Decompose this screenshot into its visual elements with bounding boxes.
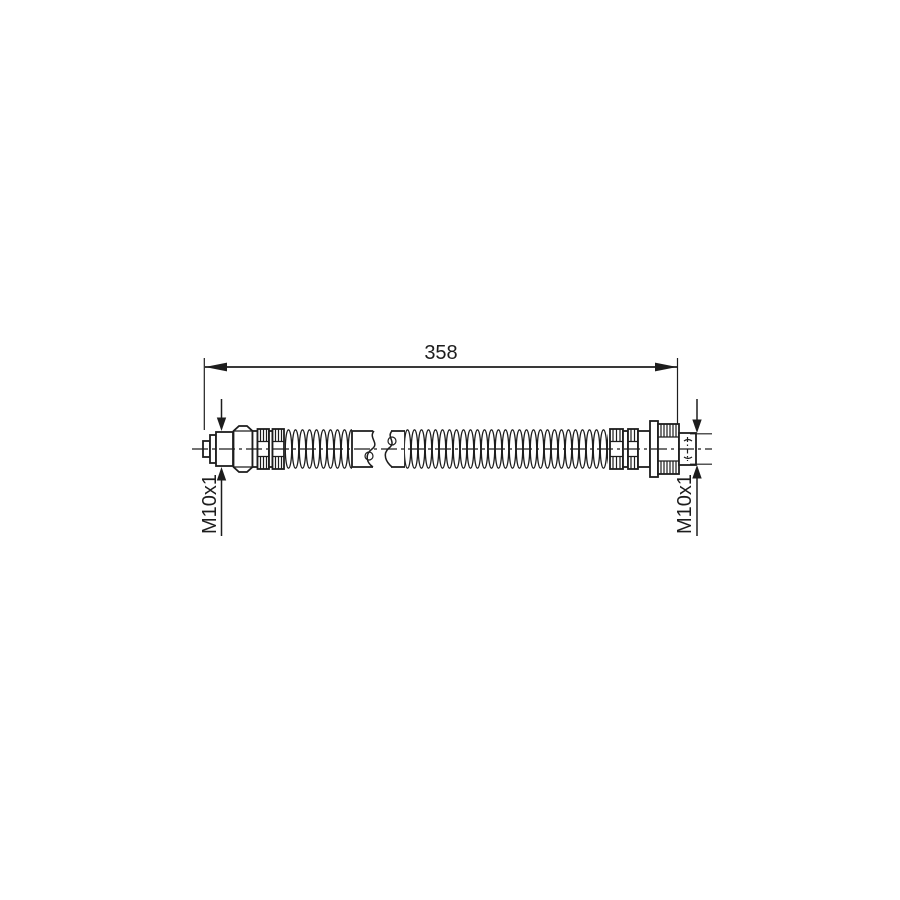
left-thread-label: M10x1 <box>199 474 221 534</box>
drawing-canvas: 358 <box>0 0 900 900</box>
brake-hose-diagram: 358 <box>0 0 900 900</box>
dimension-value: 358 <box>424 342 457 364</box>
dimension-arrowhead-left <box>205 363 227 372</box>
length-dimension-annotation: 358 <box>204 342 677 432</box>
arrowhead-down <box>692 420 701 434</box>
right-thread-label: M10x1 <box>674 474 696 534</box>
dimension-arrowhead-right <box>655 363 677 372</box>
arrowhead-down <box>217 418 226 432</box>
left-thread-annotation: M10x1 <box>199 399 226 536</box>
